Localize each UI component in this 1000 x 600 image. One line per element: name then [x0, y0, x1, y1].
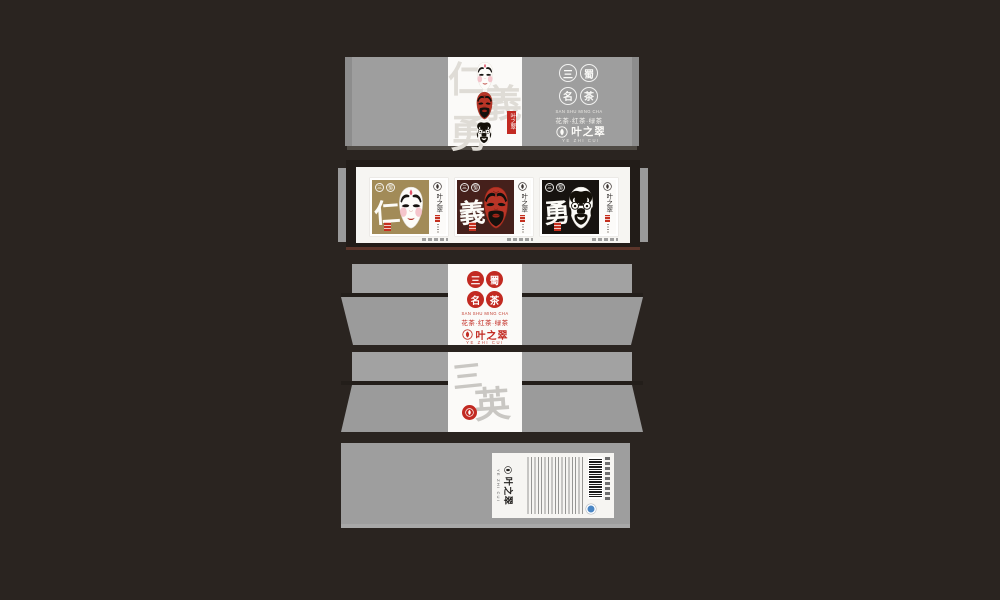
series-tagline-cn: 花茶·红茶·绿茶	[448, 317, 522, 327]
brand-subtitle: YE ZHI CUI	[448, 340, 522, 345]
brand-subtitle: YE ZHI CUI	[496, 457, 501, 514]
leaf-seal-icon	[518, 182, 527, 191]
red-square-seal	[469, 222, 476, 231]
tea-card-zhangfei: 三 蜀 勇 叶之翠	[540, 178, 618, 236]
card-caption-line	[422, 238, 448, 241]
open-box-panel: 三 蜀 仁 叶之翠 三	[338, 160, 648, 250]
leaf-seal-icon	[603, 182, 612, 191]
lid-side-panel: 三 蜀 名 茶 SAN SHU MING CHA 花茶·红茶·绿茶 叶之翠 YE…	[337, 264, 647, 349]
label-meta	[588, 457, 610, 502]
zhangfei-mask-icon	[469, 119, 499, 146]
tea-card-liubei: 三 蜀 仁 叶之翠	[370, 178, 448, 236]
side-center-label: 三 蜀 名 茶 SAN SHU MING CHA 花茶·红茶·绿茶 叶之翠 YE…	[448, 264, 522, 345]
box-right-edge	[640, 168, 648, 242]
card-brand-strip: 叶之翠	[514, 180, 531, 234]
card-seal-pair: 三 蜀	[545, 183, 565, 192]
watermark-character: 英	[472, 375, 512, 429]
brand-name: 叶之翠	[571, 124, 606, 139]
seal-circle: 三	[467, 271, 484, 288]
seal-circle: 蜀	[486, 271, 503, 288]
tea-packaging-mockup: 仁 義 勇 叶之翠 三 蜀 名 茶 SAN SHU MING CHA 花茶·红茶…	[0, 0, 1000, 600]
series-seal-grid: 三 蜀 名 茶	[559, 64, 601, 106]
tea-card-guanyu: 三 蜀 義 叶之翠	[455, 178, 533, 236]
recycle-icon	[586, 504, 596, 514]
mini-red-seal	[520, 215, 525, 222]
seal-circle: 三	[545, 183, 554, 192]
series-tagline-en: SAN SHU MING CHA	[529, 109, 629, 114]
rotated-label-content: 叶之翠 YE ZHI CUI	[492, 453, 614, 518]
seal-circle: 名	[559, 87, 577, 105]
brand-name: 叶之翠	[502, 477, 515, 506]
seal-circle: 三	[559, 64, 577, 82]
lid-center-label: 仁 義 勇 叶之翠	[448, 57, 522, 146]
leaf-seal-icon	[505, 466, 513, 474]
guanyu-mask-icon	[471, 91, 498, 120]
card-brand-strip: 叶之翠	[599, 180, 616, 234]
seal-circle: 蜀	[580, 64, 598, 82]
lid-bottom-shadow	[347, 146, 637, 150]
leaf-seal-icon	[556, 126, 568, 138]
label-brand-block: 叶之翠 YE ZHI CUI	[496, 457, 515, 514]
fine-print-line	[605, 457, 610, 502]
card-caption-line	[592, 238, 618, 241]
strip-fine-print	[437, 224, 439, 234]
brand-subtitle: YE ZHI CUI	[539, 138, 623, 143]
liubei-mask-icon	[473, 61, 497, 91]
card-artwork: 三 蜀 勇	[542, 180, 599, 234]
barcode	[589, 459, 602, 497]
series-seal-grid: 三 蜀 名 茶	[467, 271, 505, 309]
red-stamp-seal	[462, 405, 477, 420]
stamp-text: 叶之翠	[509, 113, 515, 134]
brand-name-vertical: 叶之翠	[519, 193, 526, 213]
product-info-label: 叶之翠 YE ZHI CUI	[492, 453, 614, 518]
product-info-lines	[527, 457, 583, 514]
box-bottom-panel: 叶之翠 YE ZHI CUI	[341, 443, 630, 528]
seal-circle: 茶	[486, 291, 503, 308]
leaf-seal-icon	[433, 182, 442, 191]
base-side-panel: 三 英	[337, 352, 647, 436]
seal-circle: 三	[460, 183, 469, 192]
brand-name-vertical: 叶之翠	[604, 193, 611, 213]
red-square-seal	[554, 222, 561, 231]
card-artwork: 三 蜀 仁	[372, 180, 429, 234]
box-lining-edge	[346, 247, 640, 250]
seal-circle: 茶	[580, 87, 598, 105]
brand-logo: 叶之翠	[539, 124, 623, 139]
barcode-box	[588, 457, 603, 499]
box-lid-top-panel: 仁 義 勇 叶之翠 三 蜀 名 茶 SAN SHU MING CHA 花茶·红茶…	[345, 57, 639, 146]
box-interior: 三 蜀 仁 叶之翠 三	[356, 167, 630, 243]
leaf-seal-icon	[462, 329, 473, 340]
box-left-edge	[338, 168, 346, 242]
seal-circle: 三	[375, 183, 384, 192]
mini-red-seal	[605, 215, 610, 222]
lid-left-flap	[345, 57, 352, 146]
lid-right-flap	[632, 57, 639, 146]
leaf-seal-icon	[465, 408, 474, 417]
seal-circle: 名	[467, 291, 484, 308]
series-tagline-en: SAN SHU MING CHA	[448, 311, 522, 316]
card-seal-pair: 三 蜀	[375, 183, 395, 192]
red-square-seal	[384, 222, 391, 231]
label-code-block	[586, 457, 610, 514]
side-center-label: 三 英	[448, 352, 522, 432]
red-stamp-seal: 叶之翠	[507, 111, 516, 134]
card-artwork: 三 蜀 義	[457, 180, 514, 234]
card-seal-pair: 三 蜀	[460, 183, 480, 192]
card-brand-strip: 叶之翠	[429, 180, 446, 234]
card-caption-line	[507, 238, 533, 241]
brand-logo: 叶之翠	[502, 457, 515, 514]
mini-red-seal	[435, 215, 440, 222]
strip-fine-print	[607, 224, 609, 234]
brand-name-vertical: 叶之翠	[434, 193, 441, 213]
strip-fine-print	[522, 224, 524, 234]
